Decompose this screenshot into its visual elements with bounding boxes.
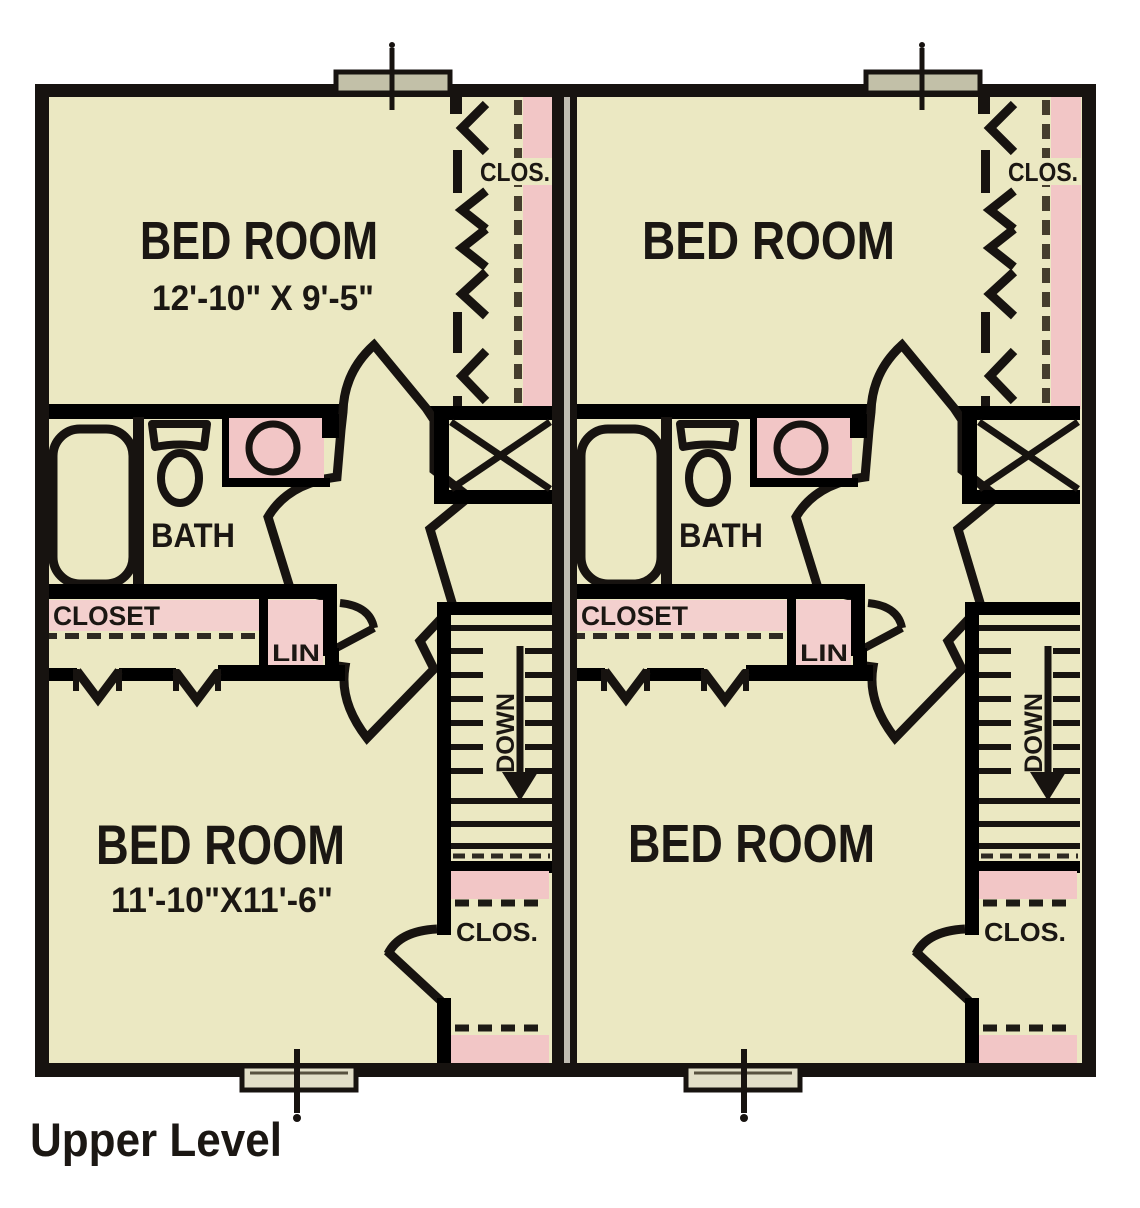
svg-text:BED ROOM: BED ROOM	[642, 211, 895, 271]
svg-text:Upper Level: Upper Level	[30, 1113, 282, 1166]
svg-text:BED ROOM: BED ROOM	[140, 211, 378, 271]
svg-text:11'-10"X11'-6": 11'-10"X11'-6"	[111, 881, 333, 920]
svg-text:BED ROOM: BED ROOM	[628, 814, 875, 874]
svg-text:BED ROOM: BED ROOM	[96, 813, 345, 876]
svg-text:12'-10" X 9'-5": 12'-10" X 9'-5"	[152, 279, 374, 318]
